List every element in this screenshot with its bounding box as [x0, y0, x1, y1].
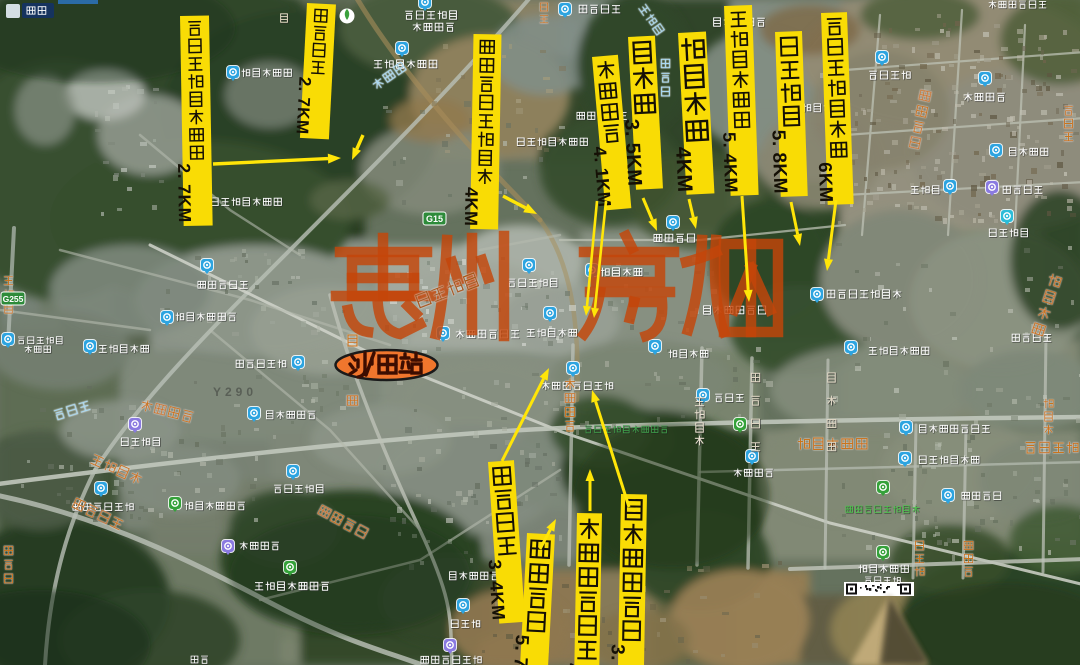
svg-text:4KM: 4KM — [671, 146, 696, 193]
svg-text:6KM: 6KM — [815, 162, 837, 203]
svg-text:5. 4KM: 5. 4KM — [719, 132, 741, 194]
svg-text:2. 7KM: 2. 7KM — [293, 76, 315, 135]
svg-text:5. 8KM: 5. 8KM — [767, 129, 790, 194]
svg-text:5. 7KM: 5. 7KM — [508, 634, 532, 665]
svg-text:3. 4KM: 3. 4KM — [606, 644, 628, 665]
svg-text:2. 7KM: 2. 7KM — [174, 163, 195, 223]
svg-text:3. 5KM: 3. 5KM — [620, 118, 646, 187]
svg-text:G255: G255 — [3, 294, 24, 304]
svg-text:3. 4KM: 3. 4KM — [485, 559, 509, 621]
svg-text:G15: G15 — [426, 214, 443, 224]
svg-text:Y290: Y290 — [213, 385, 257, 399]
svg-text:4KM: 4KM — [461, 187, 482, 227]
